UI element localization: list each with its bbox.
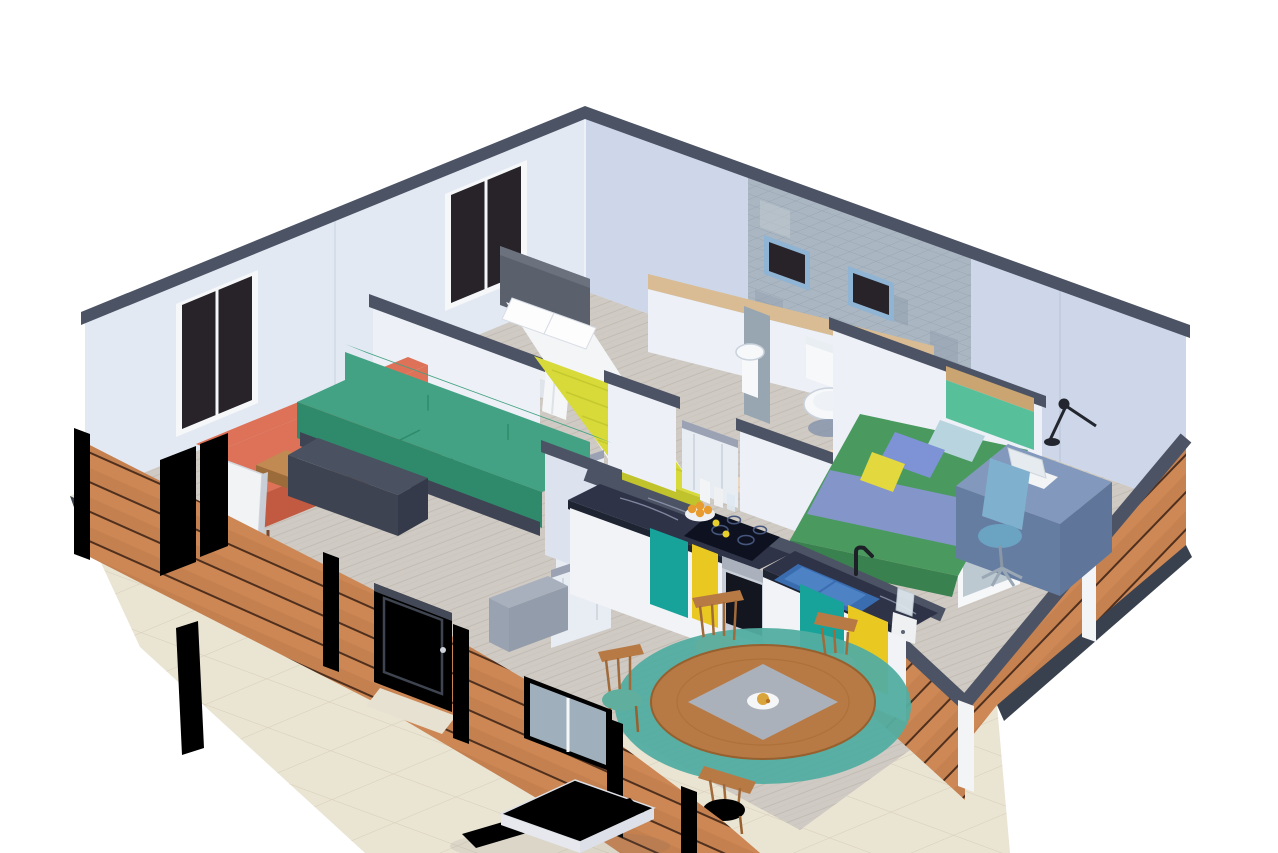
desk-lamp-head (1059, 399, 1070, 410)
sink-basin (736, 344, 764, 360)
bottle (714, 486, 723, 508)
chair-post (1000, 546, 1002, 568)
cabinet-door-teal (650, 528, 688, 618)
orange (688, 505, 696, 513)
orange (696, 509, 704, 517)
floor-plan-render (0, 0, 1278, 853)
round-dining-table (651, 645, 875, 759)
blender-button (901, 630, 905, 634)
door-handle (440, 647, 446, 653)
wall-post (323, 552, 339, 672)
chair-seat (978, 524, 1022, 548)
wall-post (74, 428, 90, 560)
panel-glass (165, 454, 191, 566)
floor-plan-stage (0, 0, 1278, 853)
bottle (700, 478, 710, 504)
wall-post (681, 786, 697, 853)
panel-glass (205, 441, 223, 547)
cabinet-door-yellow (692, 544, 718, 628)
food (766, 699, 770, 703)
wall-post (453, 624, 469, 744)
orange (704, 506, 712, 514)
glass (727, 493, 735, 512)
lemon (713, 520, 720, 527)
glass-fence-panel (160, 446, 196, 576)
fence-post (958, 700, 974, 792)
lemon (723, 531, 730, 538)
glass-fence-panel (200, 433, 228, 557)
